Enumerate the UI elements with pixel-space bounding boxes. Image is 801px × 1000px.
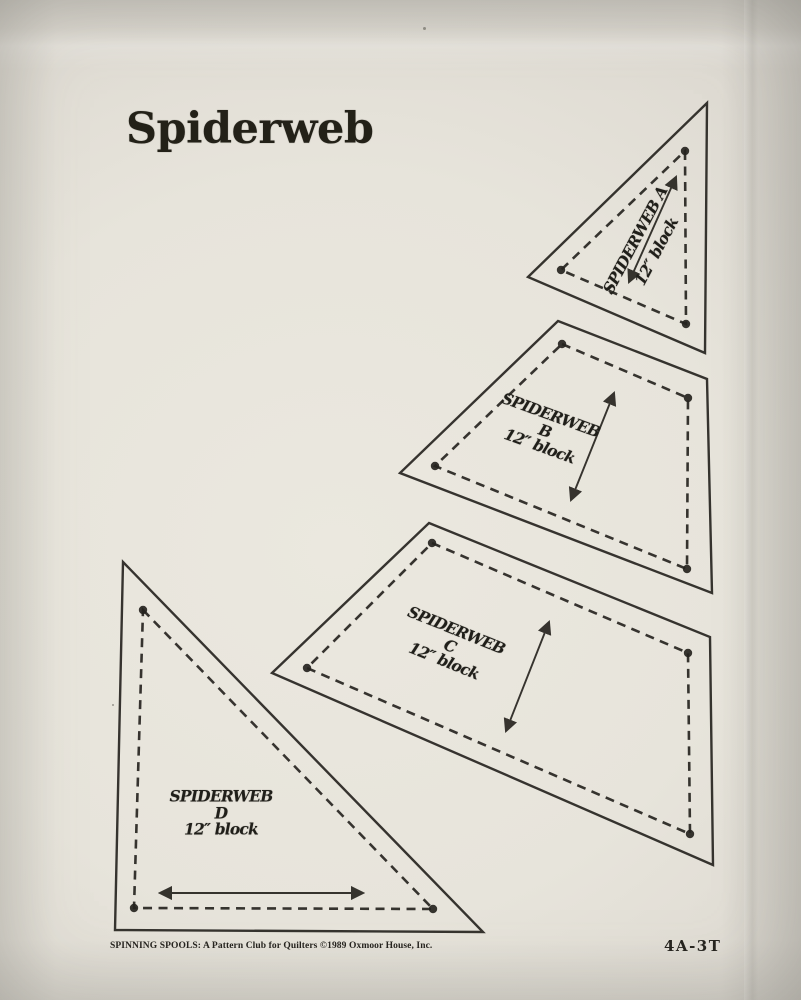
photo-backdrop: Spiderweb [0, 0, 801, 1000]
piece-c-corner-dot [303, 664, 311, 672]
footer-credit: SPINNING SPOOLS: A Pattern Club for Quil… [110, 941, 432, 951]
piece-c-corner-dot [684, 649, 692, 657]
piece-d-corner-dot [429, 905, 437, 913]
piece-d-seam-line [134, 610, 433, 909]
piece-b-corner-dot [558, 340, 566, 348]
piece-a-corner-dot [681, 147, 689, 155]
piece-b-corner-dot [684, 394, 692, 402]
piece-d-label: SPIDERWEB D 12″ block [169, 788, 272, 838]
piece-d-corner-dot [139, 606, 147, 614]
piece-c-corner-dot [428, 539, 436, 547]
piece-b-corner-dot [683, 565, 691, 573]
piece-d-corner-dot [130, 904, 138, 912]
piece-c-corner-dot [686, 830, 694, 838]
piece-b-corner-dot [431, 462, 439, 470]
template-drawing [0, 0, 801, 1000]
piece-a-corner-dot [557, 266, 565, 274]
piece-c-grainline-arrow-icon [506, 622, 549, 731]
piece-d-label-line3: 12″ block [169, 821, 272, 838]
footer-code: 4A-3T [664, 937, 721, 955]
piece-c-cutting-line [272, 523, 713, 865]
piece-c-seam-line [307, 543, 690, 834]
piece-a-corner-dot [682, 320, 690, 328]
piece-c [272, 523, 713, 865]
